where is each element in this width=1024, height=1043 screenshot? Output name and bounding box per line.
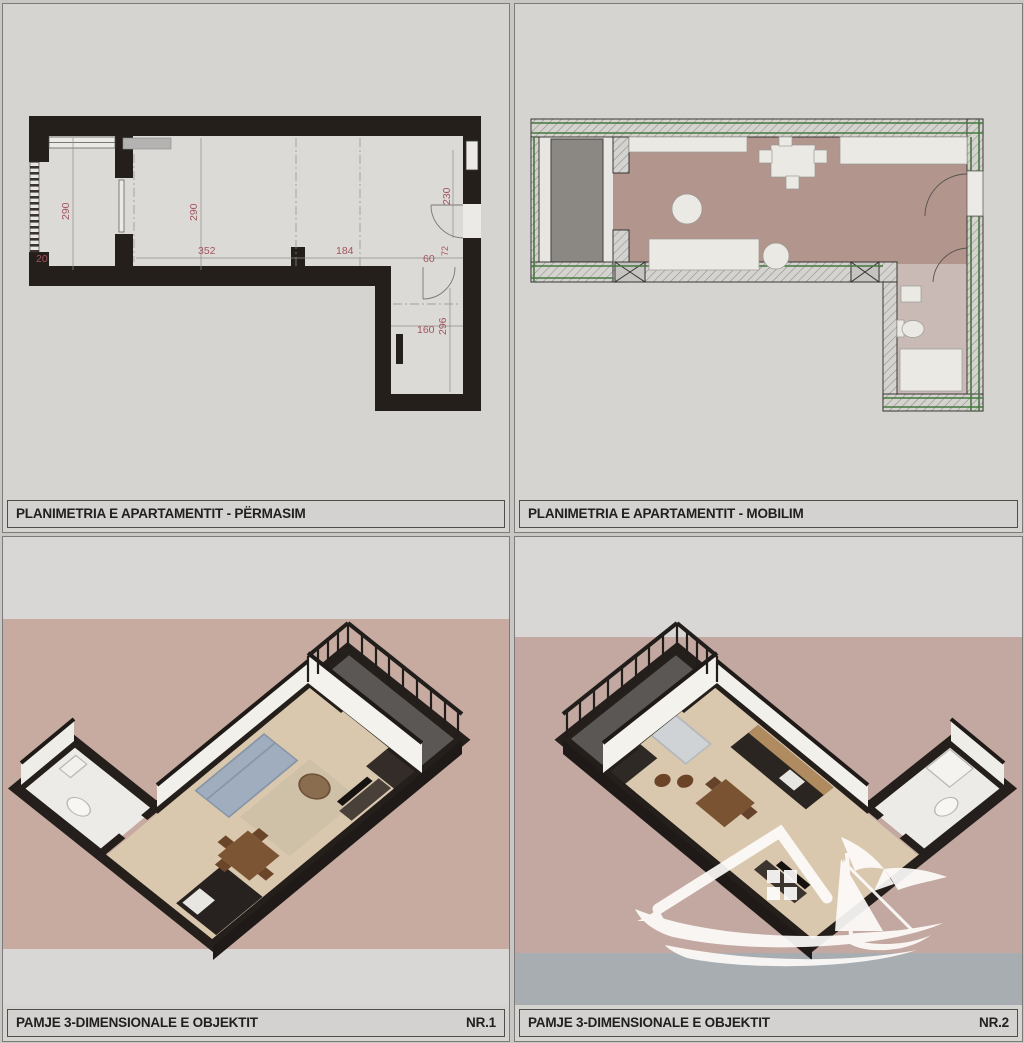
- panel-3d-view-1: PAMJE 3-DIMENSIONALE E OBJEKTIT NR.1: [2, 536, 510, 1042]
- label-plan-furnished: PLANIMETRIA E APARTAMENTIT - MOBILIM: [519, 500, 1018, 528]
- round-rug-1: [672, 194, 702, 224]
- panel-plan-furnished: PLANIMETRIA E APARTAMENTIT - MOBILIM: [514, 3, 1023, 533]
- balcony-deck: [551, 139, 603, 279]
- panel-plan-dimensions: 290 290 352 184 230 20 60 72 160 296 PLA…: [2, 3, 510, 533]
- label-plan-dimensions: PLANIMETRIA E APARTAMENTIT - PËRMASIM: [7, 500, 505, 528]
- view-number-badge: NR.2: [979, 1009, 1009, 1037]
- view-number-badge: NR.1: [466, 1009, 496, 1037]
- floor-plan-furnished-drawing: [515, 4, 1022, 496]
- dim-hall-width: 184: [336, 245, 354, 257]
- label-3d-view-1: PAMJE 3-DIMENSIONALE E OBJEKTIT NR.1: [7, 1009, 505, 1037]
- label-text: PLANIMETRIA E APARTAMENTIT - MOBILIM: [528, 500, 804, 528]
- dim-entry-height: 230: [441, 187, 453, 205]
- dim-bath-height: 296: [437, 317, 449, 335]
- sink: [901, 286, 921, 302]
- floor-plan-dimensions-drawing: 290 290 352 184 230 20 60 72 160 296: [3, 4, 509, 496]
- label-text: PLANIMETRIA E APARTAMENTIT - PËRMASIM: [16, 500, 306, 528]
- round-rug-2: [763, 243, 789, 269]
- dim-living-width: 352: [198, 245, 216, 257]
- label-3d-view-2: PAMJE 3-DIMENSIONALE E OBJEKTIT NR.2: [519, 1009, 1018, 1037]
- shower: [900, 349, 962, 391]
- kitchen-counter-left: [629, 137, 747, 152]
- dim-bath-width: 160: [417, 324, 435, 336]
- dim-entry-door-depth: 72: [440, 246, 450, 256]
- toilet: [897, 320, 924, 338]
- dim-balcony-height: 290: [60, 202, 72, 220]
- render-3d-1: [3, 537, 509, 1005]
- label-text: PAMJE 3-DIMENSIONALE E OBJEKTIT: [528, 1009, 770, 1037]
- panel-3d-view-2: PAMJE 3-DIMENSIONALE E OBJEKTIT NR.2: [514, 536, 1023, 1042]
- kitchen-counter-right: [840, 137, 967, 164]
- sofa-top-view: [649, 239, 759, 270]
- dim-balcony-width: 20: [36, 253, 48, 265]
- architectural-sheet: 290 290 352 184 230 20 60 72 160 296 PLA…: [0, 0, 1024, 1043]
- dim-entry-door-width: 60: [423, 253, 435, 265]
- balcony-railing-hatch: [30, 162, 39, 252]
- render-3d-2: [515, 537, 1022, 1005]
- label-text: PAMJE 3-DIMENSIONALE E OBJEKTIT: [16, 1009, 258, 1037]
- dim-living-height: 290: [188, 203, 200, 221]
